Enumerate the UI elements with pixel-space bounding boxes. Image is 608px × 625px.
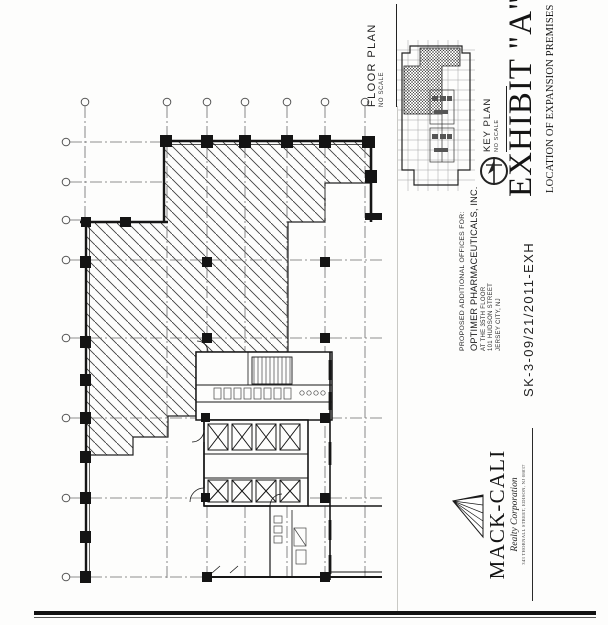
logo-address: 343 THORNALL STREET, EDISON, NJ 08837 <box>521 464 528 564</box>
floor-plan-drawing <box>40 80 400 585</box>
exhibit-subtitle: LOCATION OF EXPANSION PREMISES <box>545 7 556 193</box>
exhibit-sheet: FLOOR PLAN NO SCALE KEY PLAN NO SCALE EX… <box>0 0 608 625</box>
key-plan-title: KEY PLAN <box>482 86 493 152</box>
sketch-number-block: SK-3-09/21/2011-EXH <box>521 249 541 397</box>
exhibit-title-block: EXHIBIT "A" <box>503 3 547 197</box>
project-tenant: OPTIMER PHARMACEUTICALS, INC. <box>469 221 480 351</box>
key-plan-drawing <box>394 22 478 194</box>
logo-subtitle: Realty Corporation <box>510 477 520 551</box>
floor-plan-scale: NO SCALE <box>379 4 385 107</box>
key-plan-premises <box>404 48 460 114</box>
project-city: JERSEY CITY, NJ <box>496 221 504 351</box>
door-swing-marks <box>212 566 238 573</box>
project-street: 101 HUDSON STREET <box>488 221 496 351</box>
sketch-number: SK-3-09/21/2011-EXH <box>521 249 536 397</box>
logo-name: MACK-CALI <box>485 450 510 580</box>
service-fixtures <box>274 516 306 564</box>
project-title-block: PROPOSED ADDITIONAL OFFICES FOR: OPTIMER… <box>459 221 506 351</box>
stair <box>252 357 292 384</box>
building-core <box>190 341 382 580</box>
sheet-fold-line <box>397 106 398 611</box>
project-line: PROPOSED ADDITIONAL OFFICES FOR: <box>459 221 467 351</box>
exhibit-subtitle-block: LOCATION OF EXPANSION PREMISES <box>545 7 560 193</box>
wall-end-cap <box>365 213 382 220</box>
key-plan-core <box>430 90 454 162</box>
floor-plan-label: FLOOR PLAN NO SCALE <box>366 4 397 107</box>
sheet-bottom-border <box>34 611 596 615</box>
project-floor: AT THE 35TH FLOOR <box>481 221 489 351</box>
exhibit-title: EXHIBIT "A" <box>503 3 540 197</box>
mack-cali-pyramid-icon <box>452 488 484 542</box>
floor-plan-title: FLOOR PLAN <box>366 4 378 107</box>
mack-cali-logo-block: MACK-CALI Realty Corporation 343 THORNAL… <box>452 428 533 601</box>
key-plan-scale: NO SCALE <box>494 86 500 152</box>
sheet-bottom-border-shadow <box>34 617 596 618</box>
